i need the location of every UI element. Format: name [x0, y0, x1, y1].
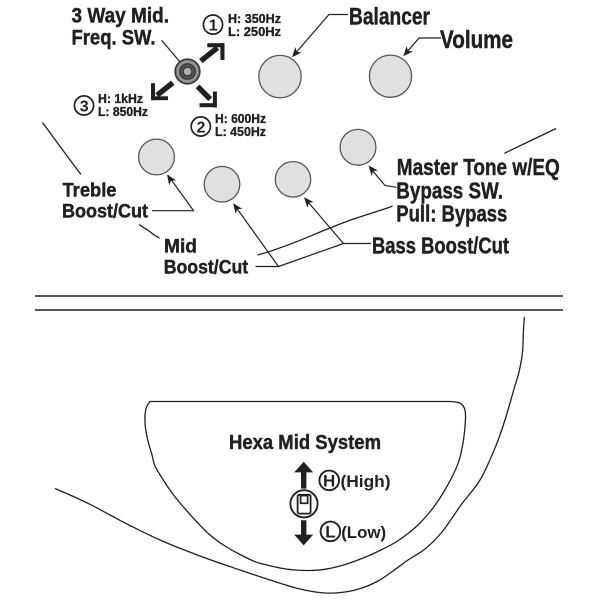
svg-text:Pull: Bypass: Pull: Bypass — [396, 200, 507, 226]
svg-text:Master Tone w/EQ: Master Tone w/EQ — [397, 154, 560, 180]
svg-text:2: 2 — [197, 119, 206, 136]
svg-text:L: 450Hz: L: 450Hz — [215, 124, 266, 139]
svg-text:(High): (High) — [341, 472, 391, 491]
svg-text:L: 250Hz: L: 250Hz — [228, 24, 281, 39]
svg-text:L: 850Hz: L: 850Hz — [98, 104, 148, 119]
svg-text:3: 3 — [80, 98, 89, 115]
svg-text:Bass Boost/Cut: Bass Boost/Cut — [372, 232, 509, 258]
svg-text:3 Way Mid.: 3 Way Mid. — [72, 4, 170, 27]
svg-text:(Low): (Low) — [341, 523, 386, 542]
svg-text:H: H — [323, 472, 335, 491]
svg-text:Hexa Mid System: Hexa Mid System — [229, 432, 381, 454]
svg-text:Mid: Mid — [164, 235, 197, 257]
svg-text:Boost/Cut: Boost/Cut — [62, 202, 149, 223]
svg-text:Boost/Cut: Boost/Cut — [164, 256, 249, 278]
svg-text:Volume: Volume — [440, 26, 513, 54]
svg-text:L: L — [325, 523, 335, 542]
svg-text:Freq. SW.: Freq. SW. — [72, 27, 156, 50]
svg-text:1: 1 — [209, 17, 218, 34]
svg-text:Balancer: Balancer — [349, 4, 430, 31]
svg-text:Treble: Treble — [63, 181, 117, 202]
